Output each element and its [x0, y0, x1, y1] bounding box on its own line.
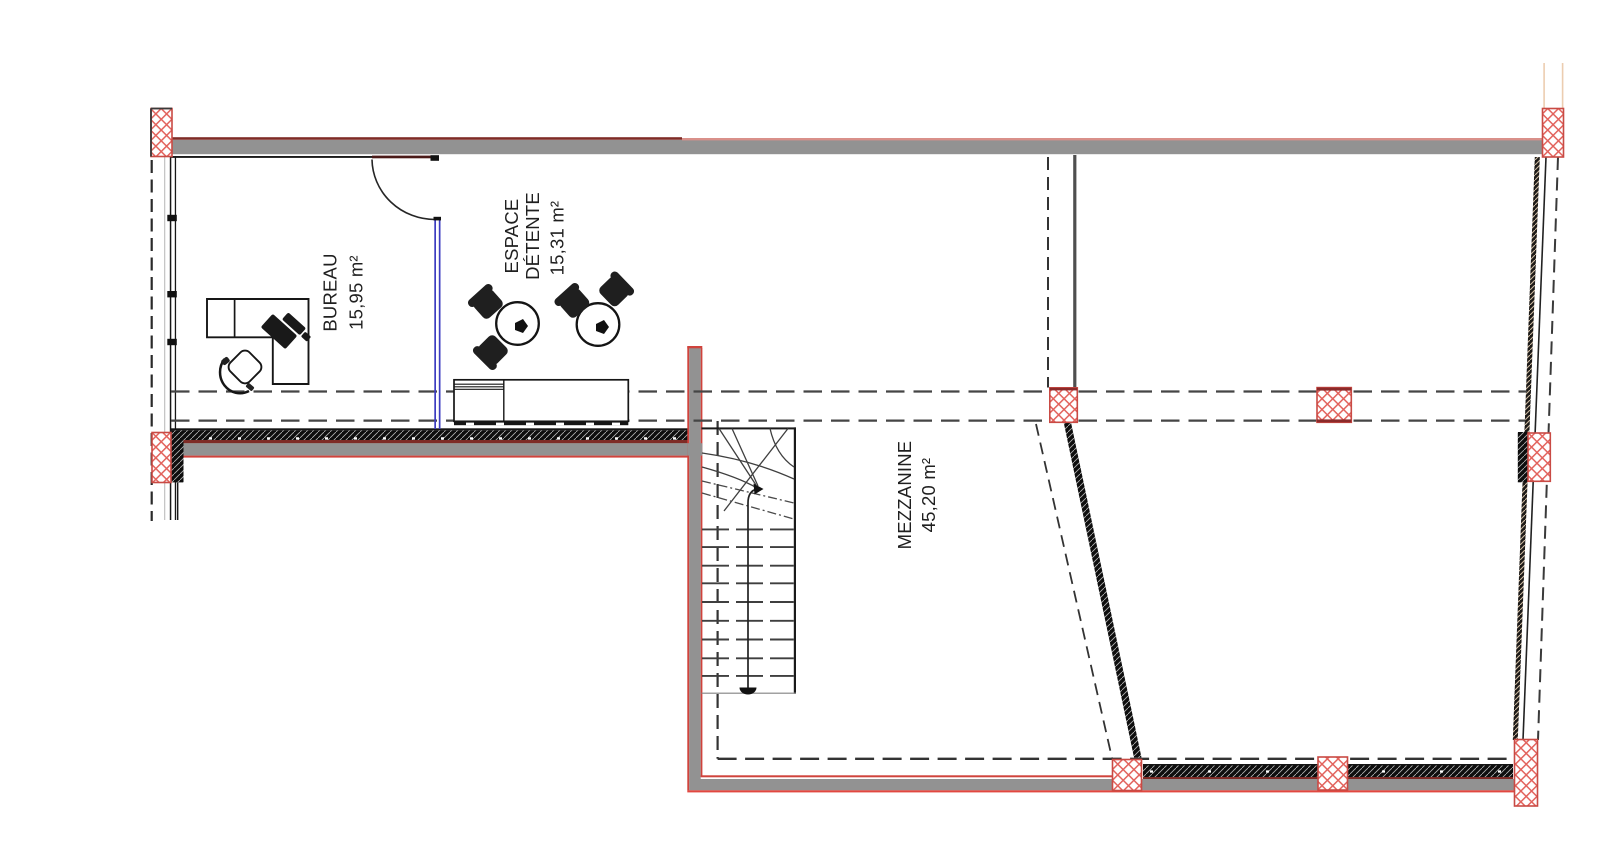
svg-text:15,95 m²: 15,95 m²: [346, 255, 367, 330]
svg-text:BUREAU: BUREAU: [320, 253, 341, 331]
svg-text:MEZZANINE: MEZZANINE: [894, 441, 915, 550]
svg-text:45,20 m²: 45,20 m²: [918, 458, 939, 533]
svg-text:ESPACE: ESPACE: [501, 199, 522, 274]
svg-text:DÉTENTE: DÉTENTE: [522, 192, 543, 280]
svg-text:15,31 m²: 15,31 m²: [547, 201, 568, 276]
